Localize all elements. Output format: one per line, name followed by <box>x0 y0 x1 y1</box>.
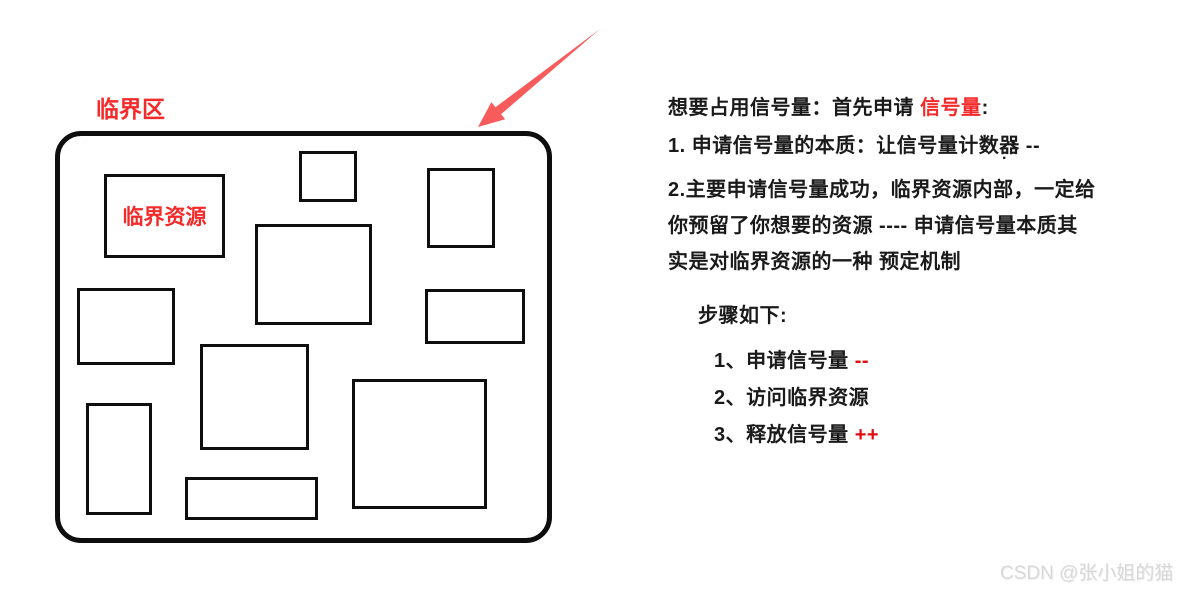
step-2-text: 2、访问临界资源 <box>714 387 869 409</box>
page: 临界区 临界资源 想要占用信号量：首先申请 信号量: 1. 申请信号量的本质：让… <box>0 0 1191 589</box>
critical-section-label: 临界区 <box>96 90 165 124</box>
step-1-text: 1、申请信号量 <box>714 350 855 372</box>
note-header-black1: 想要占用信号量：首先申请 <box>668 97 920 119</box>
step-1-mark: -- <box>855 350 869 372</box>
critical-resource-rect: 临界资源 <box>104 174 225 258</box>
resource-slot-rect <box>200 344 309 450</box>
note-header-black2: : <box>982 97 989 119</box>
csdn-watermark: CSDN @张小姐的猫 <box>1000 558 1173 585</box>
critical-resource-label: 临界资源 <box>123 201 207 231</box>
resource-slot-rect <box>299 151 357 202</box>
step-item-1: 1、申请信号量 -- <box>714 344 869 373</box>
resource-slot-rect <box>185 477 318 520</box>
resource-slot-rect <box>352 379 487 509</box>
note-header-line: 想要占用信号量：首先申请 信号量: <box>668 91 989 120</box>
note-para2-line-1: 你预留了你想要的资源 ---- 申请信号量本质其 <box>668 209 1078 238</box>
resource-slot-rect <box>255 224 372 325</box>
step-item-2: 2、访问临界资源 <box>714 381 869 410</box>
resource-slot-rect <box>427 168 495 248</box>
steps-header: 步骤如下: <box>698 299 787 328</box>
resource-slot-rect <box>86 403 152 515</box>
note-para2-line-2: 实是对临界资源的一种 预定机制 <box>668 245 961 274</box>
note-line-1: 1. 申请信号量的本质：让信号量计数器 -- <box>668 129 1040 158</box>
resource-slot-rect <box>425 289 525 344</box>
step-3-mark: ++ <box>855 424 879 446</box>
resource-slot-rect <box>77 288 175 365</box>
note-header-red: 信号量 <box>920 97 982 119</box>
step-3-text: 3、释放信号量 <box>714 424 855 446</box>
stray-dot: . <box>1002 146 1007 164</box>
note-para2-line-0: 2.主要申请信号量成功，临界资源内部，一定给 <box>668 173 1096 202</box>
step-item-3: 3、释放信号量 ++ <box>714 418 879 447</box>
